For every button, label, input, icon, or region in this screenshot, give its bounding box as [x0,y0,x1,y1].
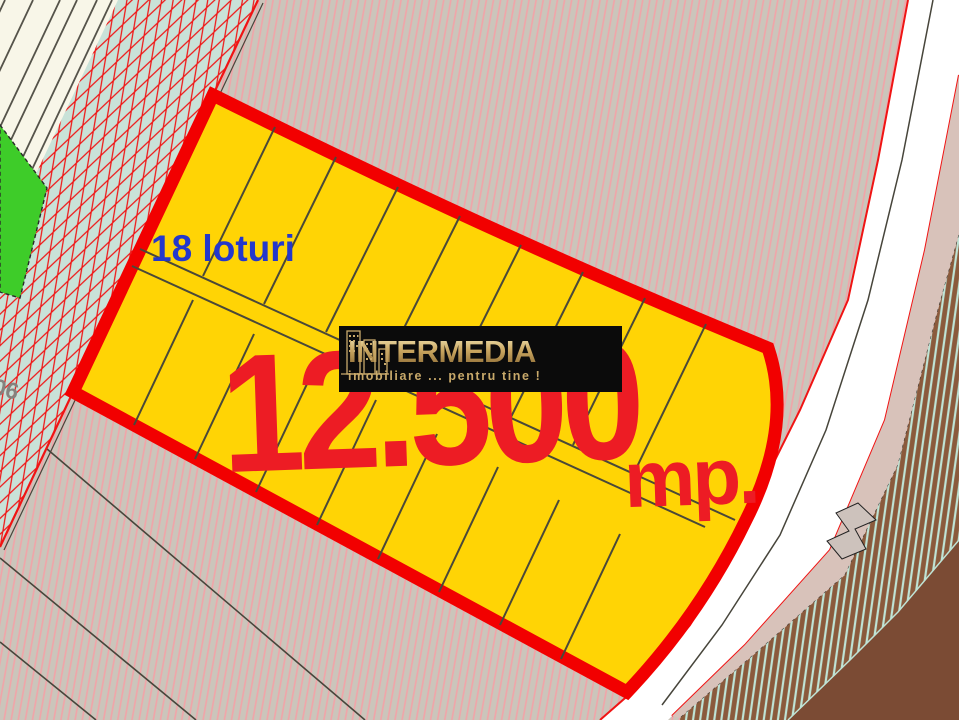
lots-count-label: 18 loturi [151,230,295,267]
buildings-icon [339,326,389,378]
cadastral-map: 18 loturi 12.500 mp. 06 [0,0,959,720]
agency-watermark: INTERMEDIA imobiliare ... pentru tine ! [339,326,622,392]
area-unit-label: mp. [623,436,759,521]
